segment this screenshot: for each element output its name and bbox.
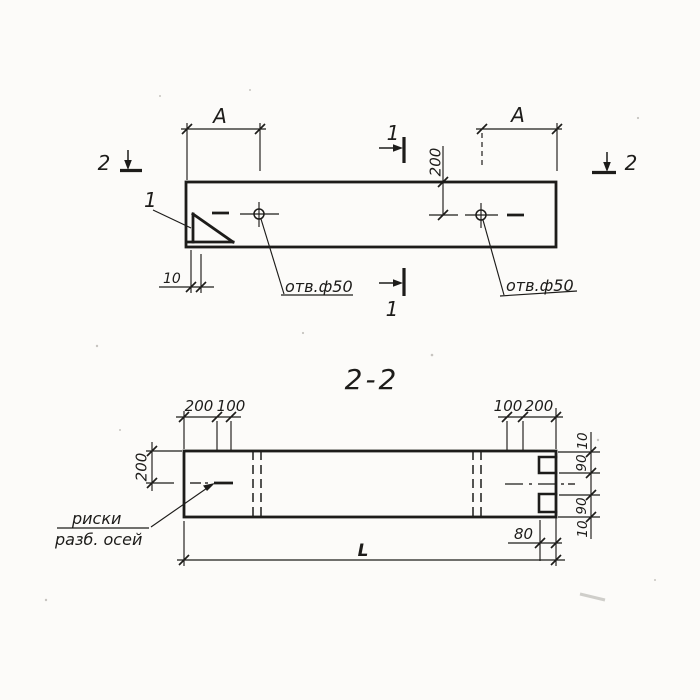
top-view: 1 А <box>98 103 638 321</box>
dim-r-10b: 10 <box>575 520 591 537</box>
hole-label-right-text: отв.ф50 <box>506 276 574 295</box>
dim-80-text: 80 <box>514 525 533 543</box>
dim-A-left: А <box>181 104 266 180</box>
hidden-hole-left <box>253 451 261 517</box>
dim-r-90a: 90 <box>574 454 590 471</box>
notch-top <box>539 457 556 473</box>
dim-A-right: А <box>476 103 562 171</box>
dim-L: L <box>177 521 565 566</box>
dim-tr-200: 200 <box>525 397 554 415</box>
hidden-hole-right <box>473 451 481 517</box>
dim-10-text: 10 <box>163 271 181 287</box>
section2-right-label: 2 <box>625 151 638 175</box>
dim-chain-top-right: 100 200 <box>494 397 563 450</box>
technical-drawing: 1 А <box>0 0 700 700</box>
hole-label-left-text: отв.ф50 <box>285 277 353 296</box>
section-outline <box>184 451 556 517</box>
dim-chain-top-left: 200 100 <box>176 397 245 450</box>
dim-tr-100: 100 <box>494 397 523 415</box>
detail-mark-1: 1 <box>144 188 191 228</box>
dim-tl-200: 200 <box>185 397 214 415</box>
hole-label-left: отв.ф50 <box>261 219 353 296</box>
hole-right <box>465 203 498 228</box>
dim-A-left-text: А <box>211 104 227 128</box>
section1-bottom-label: 1 <box>386 297 399 321</box>
section1-mark-bottom: 1 <box>379 268 404 321</box>
detail-mark-label: 1 <box>144 188 157 212</box>
dim-200-text: 200 <box>427 148 445 177</box>
dim-tl-100: 100 <box>217 397 246 415</box>
section-2-2: 2-2 200 100 <box>54 363 600 566</box>
dim-10-top-view: 10 <box>159 250 214 293</box>
section1-top-label: 1 <box>387 121 400 145</box>
axes-label-line1: риски <box>71 509 121 528</box>
dim-chain-right: 10 90 90 10 <box>558 432 600 539</box>
dim-left-200: 200 <box>133 442 183 491</box>
scan-speckles <box>45 89 656 601</box>
dim-r-10a: 10 <box>575 432 591 449</box>
dim-r-90b: 90 <box>574 497 590 514</box>
dim-L-text: L <box>358 541 369 561</box>
section2-left-label: 2 <box>98 151 111 175</box>
dim-A-right-text: А <box>509 103 525 127</box>
dim-left-200-text: 200 <box>133 453 151 482</box>
section2-mark-left: 2 <box>98 150 142 175</box>
axes-label-line2: разб. осей <box>54 530 142 549</box>
notch-bottom <box>539 494 556 512</box>
section-title: 2-2 <box>345 363 400 396</box>
hole-label-right: отв.ф50 <box>483 220 577 296</box>
hole-left <box>240 202 279 227</box>
dim-80: 80 <box>508 517 562 566</box>
drawing-sheet: 1 А <box>0 0 700 700</box>
gusset-triangle <box>188 214 233 242</box>
section2-mark-right: 2 <box>592 151 637 175</box>
section1-mark-top: 1 <box>379 121 404 163</box>
